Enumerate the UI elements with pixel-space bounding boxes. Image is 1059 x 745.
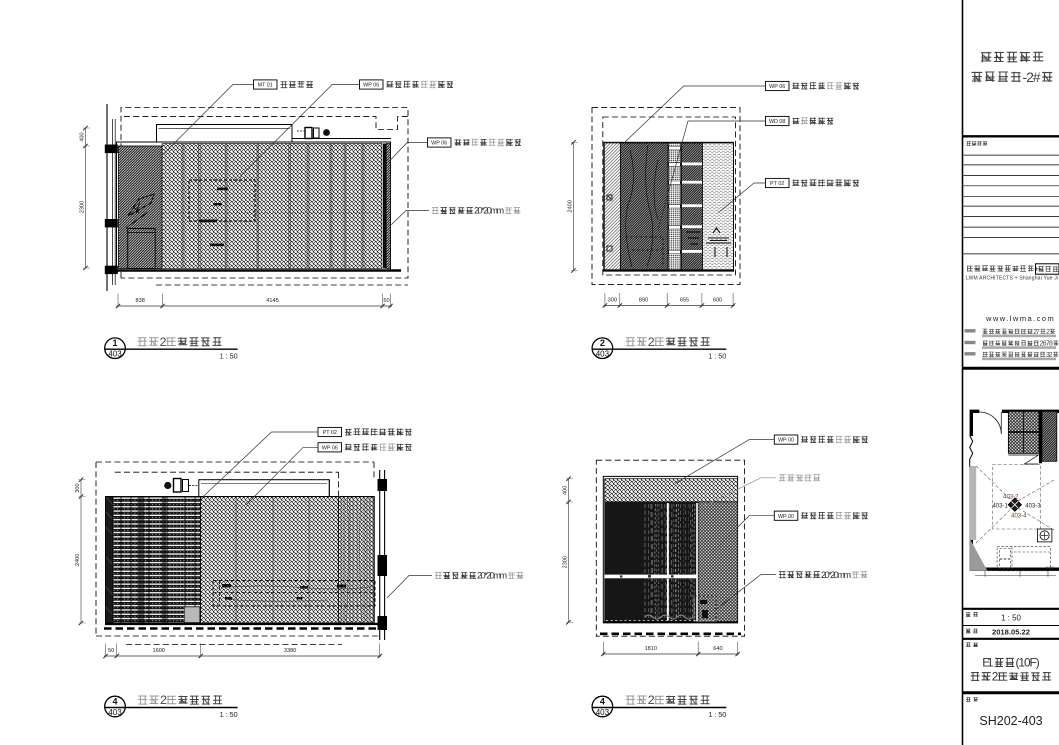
- svg-text:1: 1: [112, 338, 117, 348]
- svg-text:4145: 4145: [266, 298, 278, 304]
- svg-text:300: 300: [75, 483, 81, 492]
- svg-text:20*20mm: 20*20mm: [474, 206, 504, 216]
- svg-text:2: 2: [160, 335, 167, 349]
- svg-text:PT 02: PT 02: [323, 430, 337, 436]
- svg-text:E1: E1: [982, 656, 994, 670]
- svg-text:www.lwma.com: www.lwma.com: [985, 314, 1055, 323]
- svg-text:403: 403: [596, 708, 610, 717]
- svg-text:400: 400: [79, 132, 85, 141]
- svg-text:655: 655: [680, 298, 689, 304]
- svg-text:838: 838: [136, 298, 145, 304]
- svg-text:403: 403: [596, 350, 610, 359]
- svg-text:400: 400: [562, 486, 568, 495]
- svg-text:50: 50: [108, 648, 114, 654]
- svg-text:403: 403: [108, 708, 122, 717]
- svg-text:640: 640: [713, 646, 722, 652]
- svg-text:WD 08: WD 08: [769, 119, 785, 125]
- svg-text:2: 2: [648, 693, 655, 707]
- svg-text:20*20mm: 20*20mm: [821, 570, 851, 580]
- svg-text:20*20mm: 20*20mm: [477, 571, 507, 581]
- svg-text:2: 2: [600, 338, 605, 348]
- svg-text:2300: 2300: [79, 201, 85, 213]
- svg-text:403-4: 403-4: [1011, 513, 1027, 519]
- svg-text:(10F): (10F): [1016, 656, 1040, 670]
- svg-text:403-1: 403-1: [992, 503, 1008, 509]
- svg-text:3380: 3380: [284, 648, 296, 654]
- svg-text:1810: 1810: [645, 646, 657, 652]
- svg-text:1 : 50: 1 : 50: [220, 352, 238, 361]
- svg-text:WP 06: WP 06: [431, 141, 447, 147]
- svg-text:1 : 50: 1 : 50: [708, 710, 726, 719]
- svg-text:LWM ARCHITECTS + Shanghai Yue: LWM ARCHITECTS + Shanghai Yue Ji: [966, 276, 1058, 282]
- svg-text:50: 50: [383, 298, 389, 304]
- svg-text:SH202-403: SH202-403: [979, 714, 1042, 728]
- svg-text:MT 01: MT 01: [258, 83, 273, 89]
- svg-text:403-2: 403-2: [1003, 495, 1019, 501]
- svg-text:4: 4: [600, 696, 605, 706]
- svg-text:2: 2: [160, 693, 167, 707]
- svg-text:2400: 2400: [567, 200, 573, 212]
- svg-text:403: 403: [108, 350, 122, 359]
- svg-text:WP 06: WP 06: [363, 83, 379, 89]
- svg-text:4: 4: [112, 696, 117, 706]
- svg-text:2400: 2400: [75, 554, 81, 566]
- svg-text:1600: 1600: [152, 648, 164, 654]
- svg-text:-2#: -2#: [1023, 69, 1041, 85]
- svg-text:2: 2: [648, 335, 655, 349]
- svg-text:WP 06: WP 06: [769, 84, 785, 90]
- svg-text:890: 890: [639, 298, 648, 304]
- svg-text:PT 02: PT 02: [770, 181, 784, 187]
- svg-text:WP 00: WP 00: [778, 438, 794, 444]
- svg-text:1 : 50: 1 : 50: [220, 710, 238, 719]
- svg-text:WP 00: WP 00: [778, 514, 794, 520]
- svg-text:1 : 50: 1 : 50: [1001, 614, 1022, 623]
- svg-text:300: 300: [608, 298, 617, 304]
- svg-text:403-3: 403-3: [1025, 503, 1041, 509]
- svg-text:2018.05.22: 2018.05.22: [992, 628, 1030, 637]
- svg-text:5400: 5400: [1046, 566, 1054, 570]
- svg-text:1 : 50: 1 : 50: [708, 352, 726, 361]
- svg-text:WP 06: WP 06: [322, 445, 338, 451]
- svg-text:600: 600: [713, 298, 722, 304]
- svg-text:2: 2: [992, 670, 999, 684]
- svg-text:2300: 2300: [562, 556, 568, 568]
